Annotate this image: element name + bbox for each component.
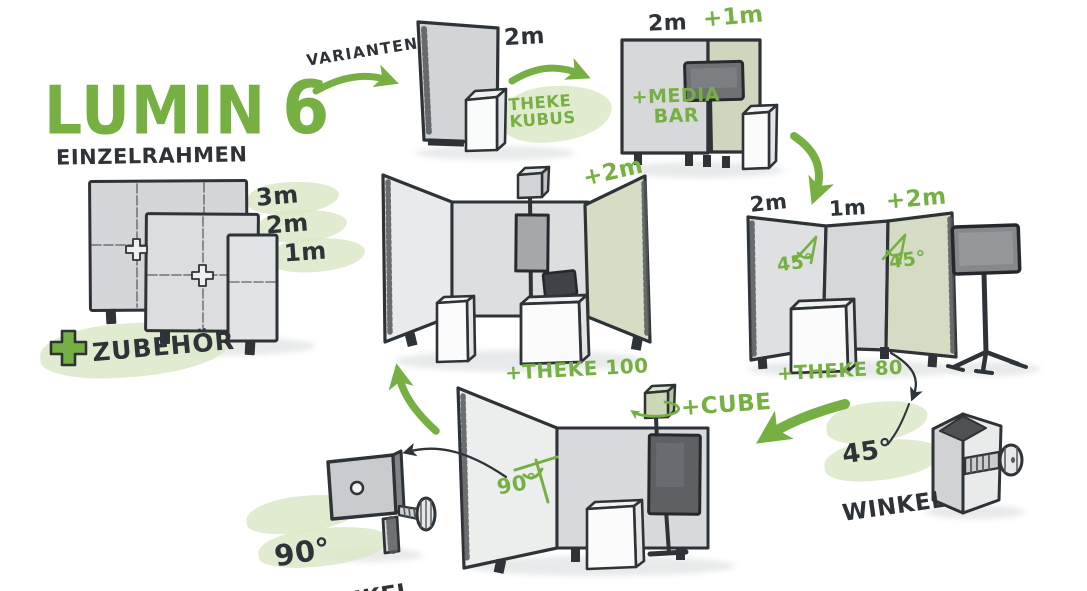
arrow-media-to-theke80: [794, 136, 819, 196]
theke80-angle-right: 45°: [888, 248, 928, 273]
theke-kubus-label: THEKE KUBUS: [508, 92, 576, 131]
cube-label: +CUBE: [680, 391, 772, 421]
media-variant-size-plus1m: +1m: [702, 3, 765, 32]
media-variant-size-2m: 2m: [648, 12, 688, 36]
detail-90-angle-text: 90°: [272, 522, 405, 572]
shadow-tv-stand: [945, 362, 1040, 376]
detail-45-winkel-text: WINKEL: [841, 488, 948, 526]
detail-90-winkel-text: WINKEL: [307, 580, 414, 591]
theke100-size-plus2m: +2m: [581, 154, 646, 191]
frame-size-3m: 3m: [255, 182, 300, 211]
center-screen-vertical: [516, 215, 548, 271]
detail-45-winkel: 45° WINKEL: [828, 396, 952, 559]
arrow-to-90-winkel: [407, 449, 506, 477]
panel-2m-single: [418, 22, 498, 151]
arrow-cube-booth-to-center: [398, 372, 436, 431]
theke80-variant-panels: [748, 213, 956, 369]
rotating-cube: [645, 385, 675, 418]
theke80-size-plus2m: +2m: [885, 185, 948, 214]
bottom-screen-pole: [666, 510, 669, 553]
frame-2m: [146, 214, 259, 332]
shadow-bottom-booth: [465, 556, 735, 576]
subtitle-einzelrahmen: EINZELRAHMEN: [56, 144, 248, 169]
theke80-angle-left: 45°: [776, 251, 816, 276]
bottom-screen: [649, 435, 701, 514]
center-pole: [530, 195, 531, 305]
arrow-kubus-to-media: [512, 68, 583, 81]
varianten-label: VARIANTEN: [305, 35, 419, 69]
cube-pole: [656, 417, 657, 440]
cube-booth-angle: 90°: [495, 471, 539, 500]
center-screen-small: [543, 270, 577, 297]
frame-size-2m: 2m: [265, 211, 309, 239]
frame-3m: [90, 180, 248, 310]
page-title: LUMIN 6: [44, 72, 329, 145]
kubus-variant-size: 2m: [503, 25, 545, 51]
tv-on-stand: [948, 225, 1026, 373]
frame-size-1m: 1m: [283, 239, 327, 267]
frame-connector-plus-icon: [126, 239, 147, 260]
theke100-label: +THEKE 100: [505, 355, 650, 383]
theke100-feet: [405, 316, 643, 351]
frame-connector-plus-icon: [192, 265, 213, 286]
theke80-label: +THEKE 80: [777, 358, 904, 385]
wedge-45-connector: [933, 414, 1022, 513]
center-cube: [518, 167, 549, 198]
title-number: 6: [282, 66, 329, 151]
sketch-canvas: LUMIN 6 EINZELRAHMEN 3m 2m 1m ZUBEHÖR VA…: [0, 0, 1087, 591]
detail-45-angle-text: 45°: [833, 429, 940, 470]
shadow-variant-kubus: [415, 146, 575, 160]
media-bar-label: +MEDIA BAR: [631, 85, 721, 128]
theke100-booth-panels: [383, 175, 650, 351]
title-word: LUMIN: [44, 72, 266, 150]
theke80-size-2m: 2m: [749, 191, 789, 217]
theke80-size-1m: 1m: [828, 197, 867, 221]
cube-rotation-arrow: [633, 402, 679, 416]
frame-1m: [228, 235, 277, 341]
bottom-screen-foot: [650, 552, 686, 554]
center-small-screen-pole: [559, 294, 560, 303]
media-variant-podium: [743, 105, 777, 169]
